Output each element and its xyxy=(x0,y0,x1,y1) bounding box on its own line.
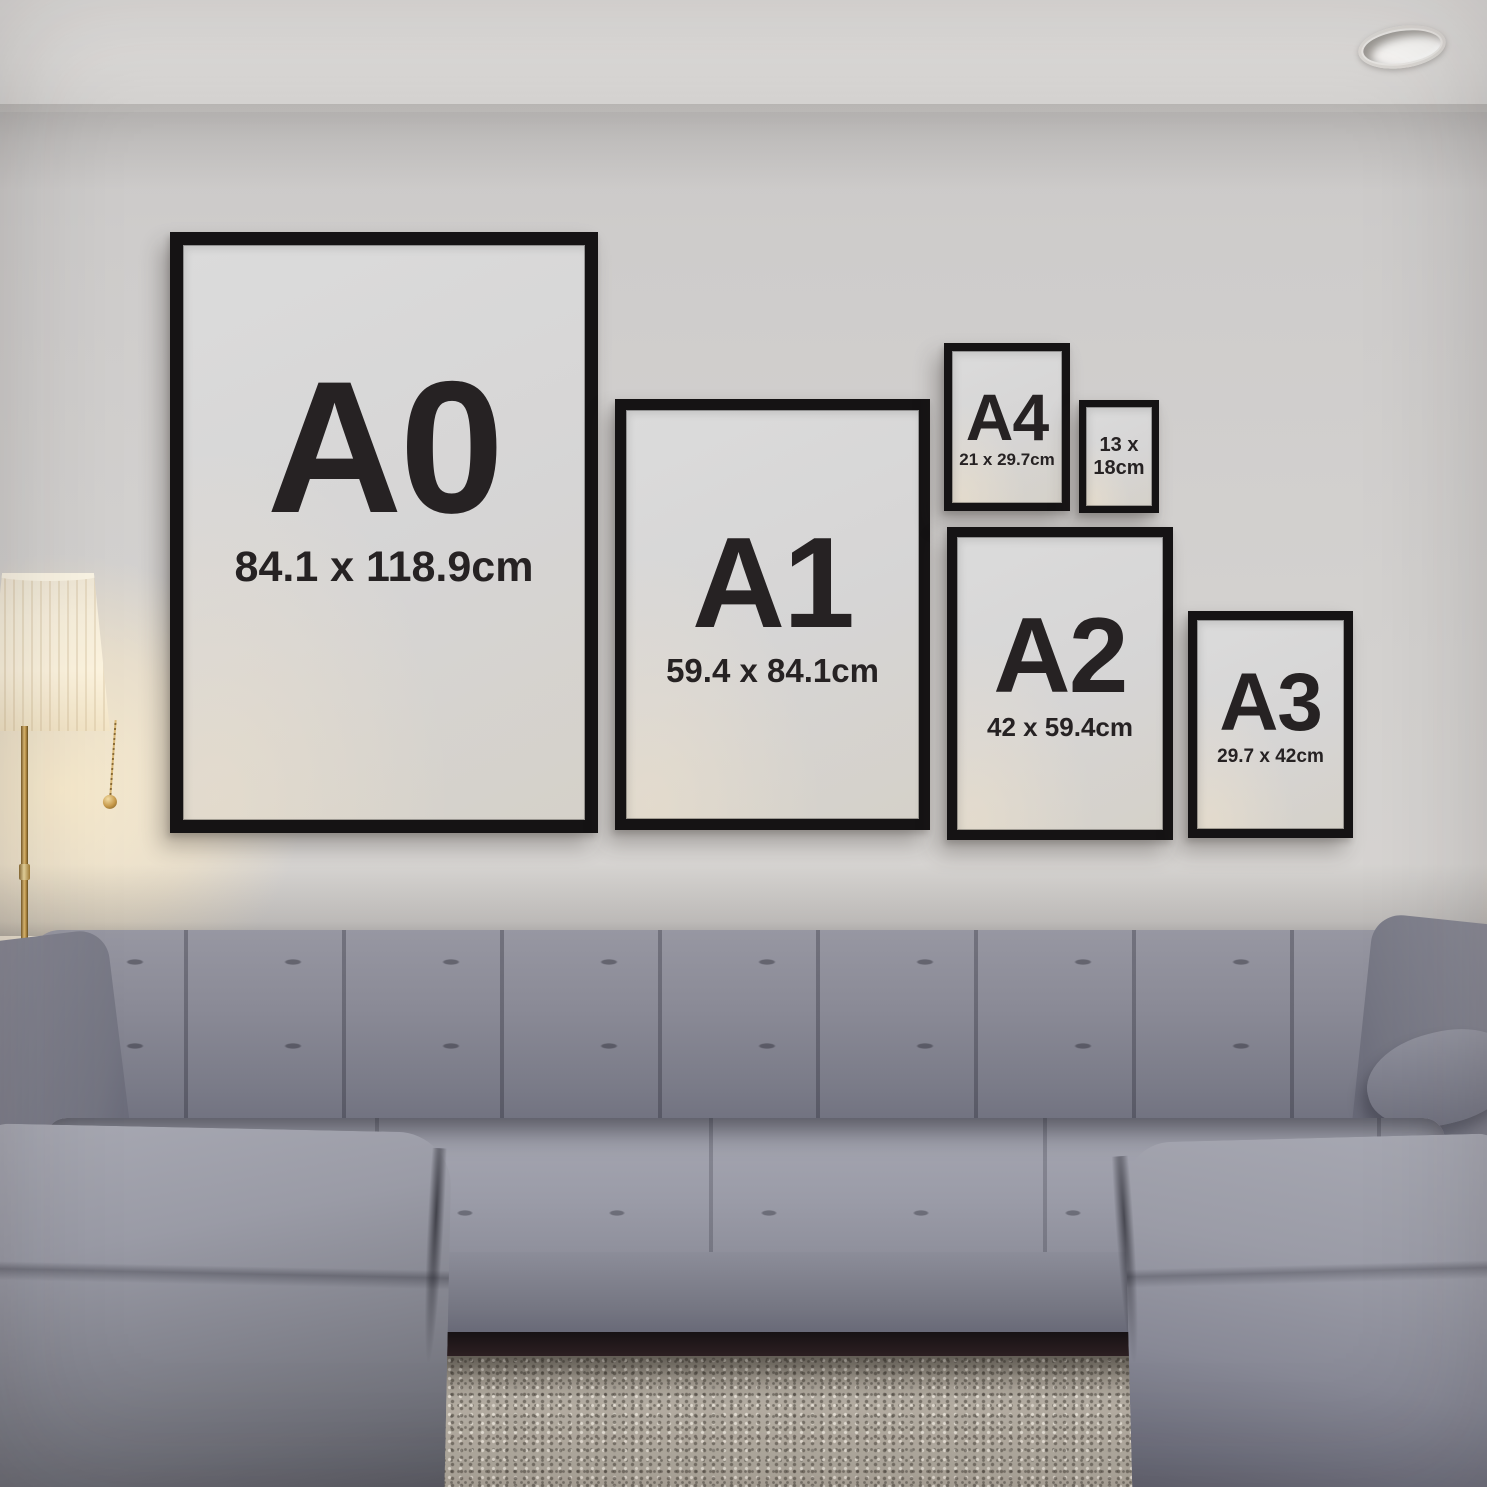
frame-a0: A0 84.1 x 118.9cm xyxy=(170,232,598,833)
frame-a2-mat: A2 42 x 59.4cm xyxy=(957,537,1163,830)
frame-13x18-dimensions-line1: 13 x xyxy=(1100,434,1139,456)
frame-a2: A2 42 x 59.4cm xyxy=(947,527,1173,840)
frame-a4-size-label: A4 xyxy=(966,388,1048,446)
frame-a3-text: A3 29.7 x 42cm xyxy=(1217,667,1324,768)
ceiling xyxy=(0,0,1487,112)
frame-a1: A1 59.4 x 84.1cm xyxy=(615,399,930,830)
lamp-pull-chain-ball xyxy=(102,794,117,809)
frame-a1-text: A1 59.4 x 84.1cm xyxy=(666,527,879,691)
lamp-pull-chain xyxy=(109,720,116,796)
frame-a0-text: A0 84.1 x 118.9cm xyxy=(235,365,534,591)
floor-lamp-pole xyxy=(21,726,28,958)
frame-a0-size-label: A0 xyxy=(267,365,502,530)
frame-a3: A3 29.7 x 42cm xyxy=(1188,611,1353,838)
frame-13x18-text: 13 x 18cm xyxy=(1093,434,1144,479)
frame-13x18-dimensions-line2: 18cm xyxy=(1093,457,1144,479)
frame-a1-dimensions: 59.4 x 84.1cm xyxy=(666,652,879,690)
frame-a0-dimensions: 84.1 x 118.9cm xyxy=(235,543,534,592)
floor-lamp-shade xyxy=(0,573,110,731)
sofa-wall-shadow xyxy=(0,864,1487,936)
frame-a4-mat: A4 21 x 29.7cm xyxy=(952,351,1062,503)
frame-a3-size-label: A3 xyxy=(1219,667,1321,739)
frame-a4-dimensions: 21 x 29.7cm xyxy=(959,450,1054,470)
living-room-scene: A0 84.1 x 118.9cm A1 59.4 x 84.1cm A4 21… xyxy=(0,0,1487,1487)
lamp-shade-rim xyxy=(0,569,100,581)
frame-a3-dimensions: 29.7 x 42cm xyxy=(1217,746,1324,768)
frame-a2-dimensions: 42 x 59.4cm xyxy=(987,712,1133,743)
frame-13x18-mat: 13 x 18cm xyxy=(1086,407,1152,506)
frame-13x18: 13 x 18cm xyxy=(1079,400,1159,513)
frame-a1-size-label: A1 xyxy=(692,527,853,641)
frame-a2-text: A2 42 x 59.4cm xyxy=(987,608,1133,742)
sofa-right-chaise xyxy=(1123,1133,1487,1487)
frame-a1-mat: A1 59.4 x 84.1cm xyxy=(626,410,919,819)
floor-lamp-joint xyxy=(19,864,30,880)
ceiling-wall-junction-shadow xyxy=(0,104,1487,190)
frame-a0-mat: A0 84.1 x 118.9cm xyxy=(183,245,585,820)
frame-a2-size-label: A2 xyxy=(993,608,1127,702)
frame-a4-text: A4 21 x 29.7cm xyxy=(959,388,1054,470)
sofa-left-chaise xyxy=(0,1123,452,1487)
frame-a4: A4 21 x 29.7cm xyxy=(944,343,1070,511)
frame-a3-mat: A3 29.7 x 42cm xyxy=(1197,620,1344,829)
